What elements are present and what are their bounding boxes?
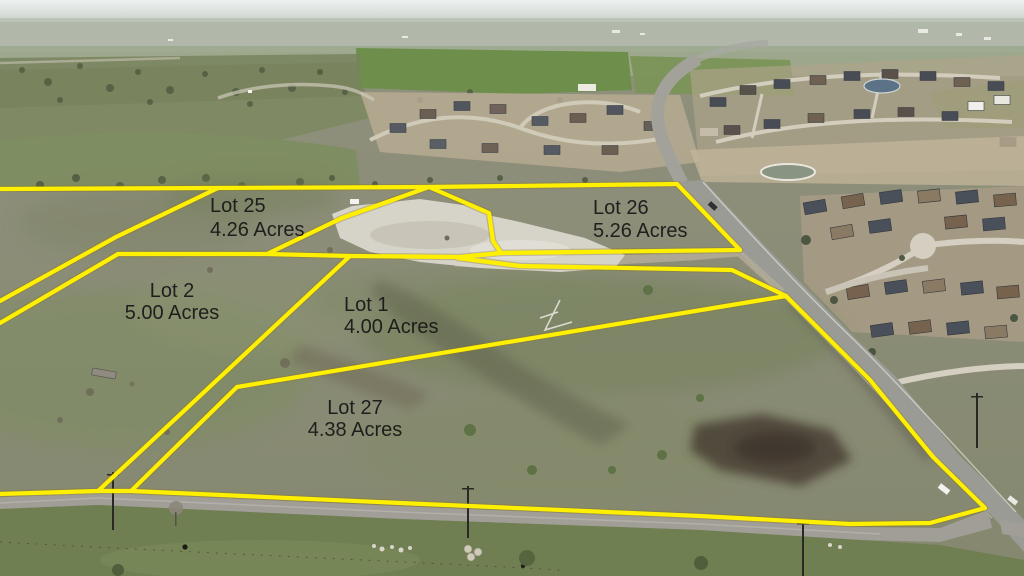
lot-25-acres: 4.26 Acres bbox=[210, 219, 305, 241]
pond-large bbox=[761, 164, 815, 180]
car-distant bbox=[248, 90, 252, 93]
aerial-lot-map: Lot 25 4.26 Acres Lot 26 5.26 Acres Lot … bbox=[0, 0, 1024, 576]
lot-26-name: Lot 26 bbox=[593, 197, 649, 219]
field-object bbox=[130, 382, 135, 387]
housing-development-topright bbox=[690, 55, 1024, 186]
lot-1-name: Lot 1 bbox=[344, 294, 388, 316]
lot-2-acres: 5.00 Acres bbox=[125, 302, 220, 324]
cow bbox=[182, 544, 187, 549]
aerial-photo: Lot 25 4.26 Acres Lot 26 5.26 Acres Lot … bbox=[0, 0, 1024, 576]
lot-25-name: Lot 25 bbox=[210, 195, 266, 217]
lot-27-acres: 4.38 Acres bbox=[308, 419, 403, 441]
lot-1-acres: 4.00 Acres bbox=[344, 316, 439, 338]
lot-2-name: Lot 2 bbox=[150, 280, 194, 302]
pad-equipment bbox=[445, 236, 450, 241]
pad-trailer bbox=[350, 199, 359, 204]
pond-small bbox=[864, 79, 900, 93]
lot-27-name: Lot 27 bbox=[327, 397, 383, 419]
lot-26-acres: 5.26 Acres bbox=[593, 220, 688, 242]
